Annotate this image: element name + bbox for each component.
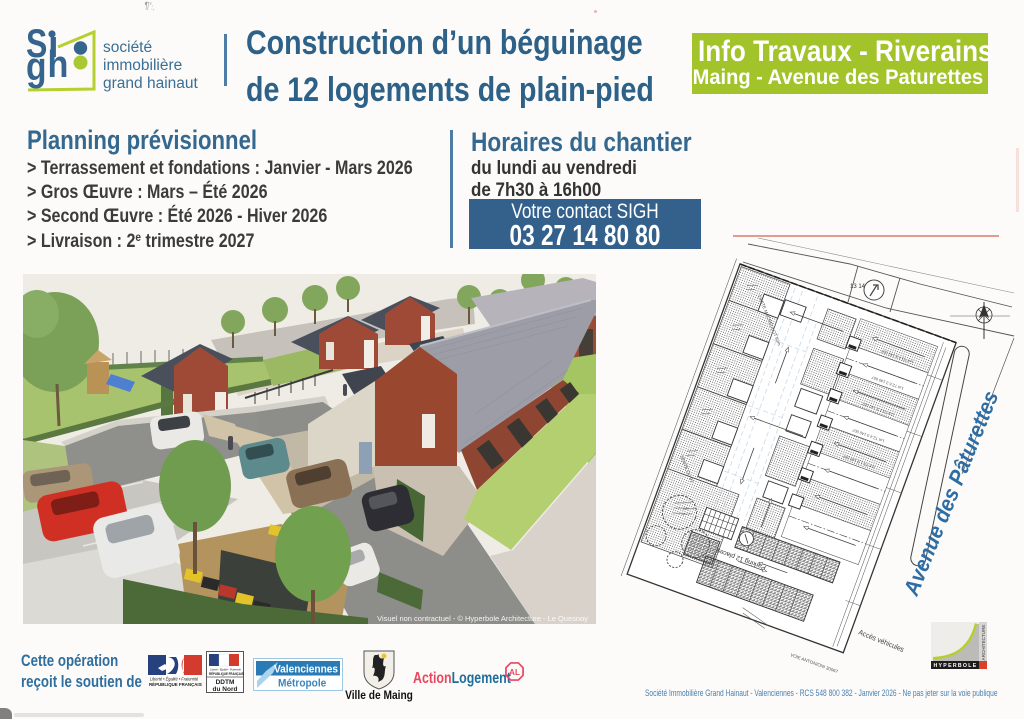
svg-text:RÉPUBLIQUE FRANÇAISE: RÉPUBLIQUE FRANÇAISE: [209, 671, 244, 676]
svg-text:DDTM: DDTM: [216, 679, 235, 686]
svg-text:Liberté - Égalité - Fraternité: Liberté - Égalité - Fraternité: [210, 666, 241, 671]
svg-text:HYPERBOLE: HYPERBOLE: [934, 663, 978, 669]
svg-text:AL: AL: [509, 668, 520, 677]
svg-text:h: h: [48, 42, 69, 85]
svg-text:immobilière: immobilière: [103, 57, 182, 74]
svg-text:VOIE ANTONIONI 30067: VOIE ANTONIONI 30067: [790, 652, 840, 674]
svg-text:du Nord: du Nord: [213, 686, 238, 693]
svg-text:Liberté • Égalité • Fraternité: Liberté • Égalité • Fraternité: [150, 676, 199, 681]
svg-text:Visuel non contractuel - © Hyp: Visuel non contractuel - © Hyperbole Arc…: [377, 614, 588, 623]
svg-text:Accès véhicules: Accès véhicules: [857, 628, 905, 654]
svg-text:Valenciennes: Valenciennes: [274, 663, 338, 675]
svg-text:g: g: [26, 44, 47, 88]
svg-text:ARCHITECTURE: ARCHITECTURE: [981, 625, 986, 661]
svg-text:13 14: 13 14: [850, 284, 866, 290]
svg-text:grand hainaut: grand hainaut: [103, 75, 198, 92]
svg-text:société: société: [103, 39, 152, 56]
svg-text:Métropole: Métropole: [278, 677, 326, 689]
